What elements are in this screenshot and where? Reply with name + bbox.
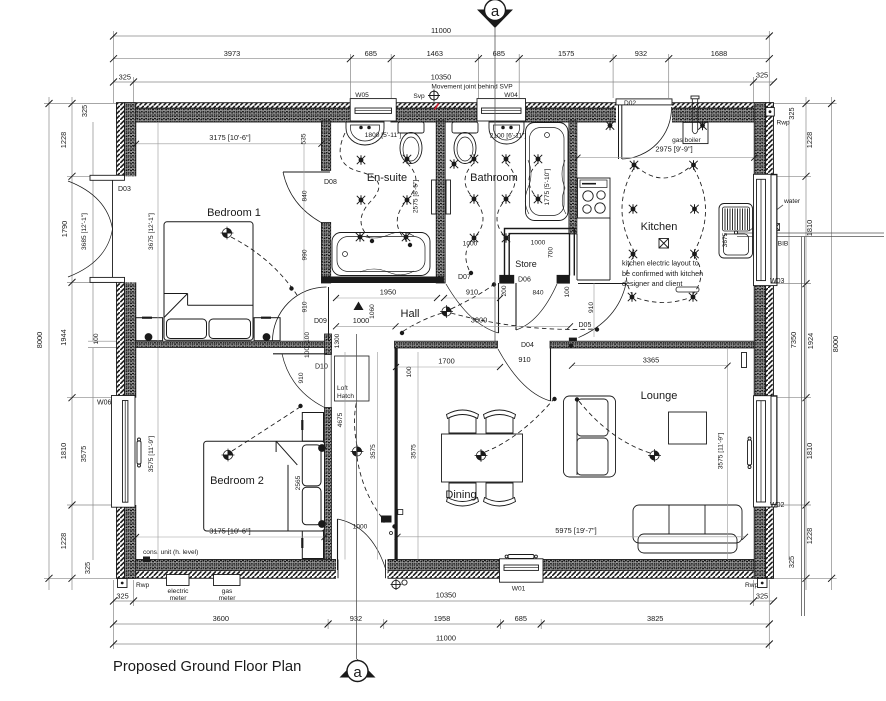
- svg-text:BIB: BIB: [778, 241, 789, 248]
- svg-text:a: a: [491, 3, 500, 20]
- svg-text:1000: 1000: [531, 239, 546, 246]
- svg-text:3675: 3675: [722, 232, 729, 247]
- svg-text:En-suite: En-suite: [367, 172, 407, 184]
- svg-text:2100 [6'-11"]: 2100 [6'-11"]: [490, 132, 527, 139]
- svg-text:a: a: [353, 664, 362, 681]
- svg-text:3575: 3575: [411, 444, 418, 459]
- svg-text:1944: 1944: [59, 329, 68, 345]
- svg-text:D06: D06: [518, 277, 531, 284]
- svg-text:7350: 7350: [789, 332, 798, 348]
- svg-text:W02: W02: [770, 502, 785, 509]
- svg-text:W05: W05: [355, 92, 369, 99]
- svg-text:5975 [19'-7"]: 5975 [19'-7"]: [555, 526, 596, 535]
- svg-text:100: 100: [564, 286, 571, 297]
- svg-text:8000: 8000: [35, 332, 44, 348]
- svg-text:1700: 1700: [438, 357, 454, 366]
- svg-text:2975 [9'-9"]: 2975 [9'-9"]: [655, 145, 692, 154]
- svg-text:1463: 1463: [427, 49, 443, 58]
- svg-text:Svp: Svp: [413, 93, 425, 100]
- svg-text:4675: 4675: [337, 412, 344, 427]
- svg-text:meter: meter: [170, 595, 188, 602]
- svg-text:D05: D05: [579, 322, 592, 329]
- svg-text:designer and client: designer and client: [622, 279, 682, 288]
- svg-text:3600: 3600: [213, 614, 229, 623]
- svg-text:11000: 11000: [436, 634, 456, 643]
- svg-text:685: 685: [515, 614, 527, 623]
- svg-text:3000: 3000: [471, 316, 487, 325]
- svg-text:D08: D08: [324, 179, 337, 186]
- svg-text:100: 100: [304, 347, 311, 358]
- svg-text:water: water: [783, 198, 801, 205]
- svg-text:1228: 1228: [805, 528, 814, 544]
- svg-text:325: 325: [756, 71, 768, 80]
- svg-text:D02: D02: [624, 100, 636, 107]
- svg-text:Hatch: Hatch: [337, 393, 354, 400]
- svg-text:932: 932: [350, 614, 362, 623]
- svg-text:325: 325: [787, 107, 796, 119]
- svg-text:932: 932: [635, 49, 647, 58]
- svg-text:100: 100: [93, 333, 100, 344]
- svg-text:Kitchen: Kitchen: [641, 221, 678, 233]
- svg-text:D09: D09: [314, 318, 327, 325]
- svg-text:910: 910: [302, 301, 309, 312]
- svg-text:1228: 1228: [59, 533, 68, 549]
- svg-text:W04: W04: [504, 92, 518, 99]
- svg-text:Loft: Loft: [337, 385, 348, 392]
- svg-text:Proposed Ground Floor Plan: Proposed Ground Floor Plan: [113, 659, 301, 675]
- svg-text:8000: 8000: [831, 336, 840, 352]
- svg-text:2565: 2565: [295, 475, 302, 490]
- svg-text:3575 [11'-9"]: 3575 [11'-9"]: [718, 433, 725, 470]
- svg-text:1810: 1810: [805, 443, 814, 459]
- svg-text:D07: D07: [458, 274, 471, 281]
- svg-text:325: 325: [787, 556, 796, 568]
- svg-text:1810: 1810: [805, 220, 814, 236]
- svg-text:meter: meter: [219, 595, 237, 602]
- svg-text:1000: 1000: [353, 316, 369, 325]
- svg-text:gas: gas: [222, 588, 233, 595]
- svg-text:electric: electric: [168, 588, 190, 595]
- svg-text:1958: 1958: [434, 614, 450, 623]
- svg-text:Hall: Hall: [401, 308, 420, 320]
- svg-text:gas boiler: gas boiler: [672, 137, 701, 144]
- svg-text:325: 325: [83, 562, 92, 574]
- svg-text:3175 [10'-6"]: 3175 [10'-6"]: [209, 527, 250, 536]
- svg-text:325: 325: [756, 592, 768, 601]
- svg-text:Bedroom 2: Bedroom 2: [210, 475, 264, 487]
- svg-text:100: 100: [406, 366, 413, 377]
- svg-text:200: 200: [501, 285, 508, 296]
- svg-text:990: 990: [302, 249, 309, 260]
- svg-text:840: 840: [532, 290, 543, 297]
- svg-text:Lounge: Lounge: [641, 390, 678, 402]
- svg-text:1950: 1950: [380, 288, 396, 297]
- svg-text:1300: 1300: [334, 333, 341, 348]
- svg-text:W01: W01: [512, 586, 526, 593]
- svg-text:910: 910: [588, 302, 595, 313]
- svg-text:Movement joint behind SVP: Movement joint behind SVP: [431, 84, 513, 91]
- svg-text:1775 [5'-10"]: 1775 [5'-10"]: [544, 168, 551, 205]
- svg-text:W03: W03: [770, 278, 785, 285]
- svg-text:D04: D04: [521, 342, 534, 349]
- svg-text:1228: 1228: [805, 132, 814, 148]
- svg-text:3575 [11'-9"]: 3575 [11'-9"]: [148, 436, 155, 473]
- svg-text:Rwp: Rwp: [777, 120, 791, 127]
- svg-text:Rwp: Rwp: [745, 582, 759, 589]
- svg-text:1790: 1790: [60, 221, 69, 237]
- svg-text:W06: W06: [97, 400, 112, 407]
- svg-text:1228: 1228: [59, 132, 68, 148]
- svg-text:3575: 3575: [79, 446, 88, 462]
- svg-text:1688: 1688: [711, 49, 727, 58]
- svg-text:Store: Store: [515, 259, 537, 269]
- svg-text:325: 325: [80, 105, 89, 117]
- svg-text:100: 100: [304, 332, 311, 343]
- svg-text:1924: 1924: [806, 333, 815, 349]
- svg-text:Bedroom 1: Bedroom 1: [207, 207, 261, 219]
- svg-text:Bathroom: Bathroom: [470, 172, 518, 184]
- svg-text:Rwp: Rwp: [136, 582, 150, 589]
- svg-text:840: 840: [302, 190, 309, 201]
- svg-text:10350: 10350: [436, 591, 457, 600]
- svg-text:910: 910: [518, 355, 530, 364]
- svg-text:D10: D10: [315, 364, 328, 371]
- svg-text:535: 535: [301, 133, 308, 144]
- svg-text:1000: 1000: [353, 524, 368, 531]
- svg-text:325: 325: [116, 592, 128, 601]
- svg-text:3685 [12'-1"]: 3685 [12'-1"]: [81, 213, 88, 250]
- svg-text:3973: 3973: [224, 49, 240, 58]
- svg-text:910: 910: [298, 372, 305, 383]
- svg-text:1810: 1810: [59, 443, 68, 459]
- svg-text:910: 910: [466, 288, 478, 297]
- svg-text:10350: 10350: [431, 73, 452, 82]
- svg-text:3675 [12'-1"]: 3675 [12'-1"]: [148, 213, 155, 250]
- svg-text:be confirmed with kitchen: be confirmed with kitchen: [622, 269, 703, 278]
- svg-text:11000: 11000: [431, 26, 451, 35]
- svg-text:685: 685: [493, 49, 505, 58]
- svg-text:2575 [8'-5"]: 2575 [8'-5"]: [413, 180, 420, 213]
- svg-text:3365: 3365: [643, 356, 659, 365]
- svg-text:1060: 1060: [369, 304, 376, 319]
- svg-text:D03: D03: [118, 186, 131, 193]
- svg-text:cons. unit (h. level): cons. unit (h. level): [143, 549, 198, 556]
- svg-text:3575: 3575: [370, 444, 377, 459]
- svg-text:700: 700: [548, 247, 555, 258]
- svg-text:kitchen electric layout to: kitchen electric layout to: [622, 259, 699, 268]
- svg-text:685: 685: [365, 49, 377, 58]
- svg-text:3175 [10'-6"]: 3175 [10'-6"]: [209, 133, 250, 142]
- svg-text:1575: 1575: [558, 49, 574, 58]
- svg-text:1000: 1000: [463, 241, 478, 248]
- svg-text:Dining: Dining: [445, 489, 476, 501]
- svg-text:325: 325: [119, 73, 131, 82]
- svg-text:1800 [5'-11"]: 1800 [5'-11"]: [365, 132, 402, 139]
- svg-text:3825: 3825: [647, 614, 663, 623]
